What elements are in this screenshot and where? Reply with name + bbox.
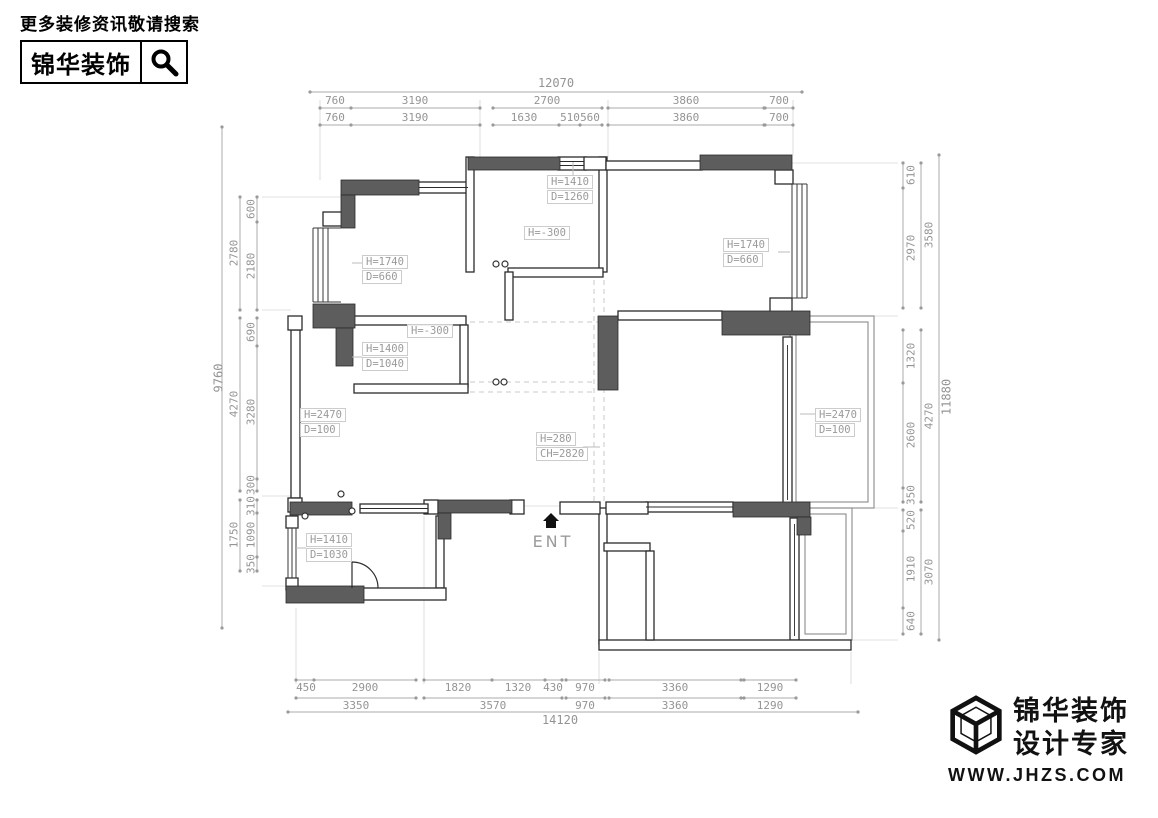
annotation-line: H=1410: [547, 175, 593, 189]
header-logo: 更多装修资讯敬请搜索 锦华装饰: [20, 10, 200, 84]
annotation-line: H=-300: [407, 324, 453, 338]
annotation-line: H=1400: [362, 342, 408, 356]
dim-label: 3190: [402, 112, 429, 123]
dim-label: 2600: [906, 422, 917, 449]
footer-logo: 锦华装饰 设计专家 WWW.JHZS.COM: [948, 694, 1148, 786]
dim-label: 700: [769, 112, 789, 123]
dim-label: 3860: [673, 95, 700, 106]
room-annotation: H=2470 D=100: [815, 408, 861, 438]
annotation-line: H=2470: [300, 408, 346, 422]
dim-label: 3570: [480, 700, 507, 711]
dim-label: 1820: [445, 682, 472, 693]
footer-brand-line1: 锦华装饰: [1013, 695, 1129, 728]
dim-label: 3360: [662, 682, 689, 693]
footer-website: WWW.JHZS.COM: [948, 765, 1148, 786]
dim-label: 610: [906, 165, 917, 185]
annotation-line: H=1410: [306, 533, 352, 547]
dim-label: 310: [246, 496, 257, 516]
dim-label: 970: [575, 700, 595, 711]
dim-label: 450: [296, 682, 316, 693]
balcony-walls: [790, 316, 874, 640]
header-brand: 锦华装饰: [22, 42, 140, 82]
annotation-line: CH=2820: [536, 447, 588, 461]
dim-label: 760: [325, 112, 345, 123]
dim-label: 3190: [402, 95, 429, 106]
dim-label: 12070: [538, 78, 574, 89]
dim-label: 430: [543, 682, 563, 693]
annotation-line: D=1040: [362, 357, 408, 371]
dim-label: 3360: [662, 700, 689, 711]
dim-label: 2970: [906, 235, 917, 262]
cube-wireframe-icon: [948, 694, 1004, 761]
annotation-line: H=2470: [815, 408, 861, 422]
dim-label: 350: [246, 554, 257, 574]
annotation-line: D=1260: [547, 190, 593, 204]
footer-brand-line2: 设计专家: [1013, 728, 1129, 761]
dim-label: 1290: [757, 682, 784, 693]
annotation-line: D=1030: [306, 548, 352, 562]
home-arrow-icon: [543, 513, 559, 528]
annotation-line: D=660: [362, 270, 402, 284]
room-annotation: H=1740 D=660: [723, 238, 769, 268]
dim-label: 520: [906, 510, 917, 530]
header-brand-box: 锦华装饰: [20, 40, 188, 84]
dashed-guides: [470, 280, 604, 505]
dim-label: 2900: [352, 682, 379, 693]
dim-label: 3070: [924, 559, 935, 586]
dim-label: 2180: [246, 253, 257, 280]
dim-label: 3280: [246, 399, 257, 426]
dim-label: 9760: [214, 364, 225, 393]
annotation-line: H=1740: [723, 238, 769, 252]
annotation-line: D=660: [723, 253, 763, 267]
dim-label: 14120: [542, 715, 578, 726]
room-annotation: H=2470 D=100: [300, 408, 346, 438]
dim-label: 600: [246, 199, 257, 219]
door-arc: [352, 562, 378, 588]
dim-label: 1910: [906, 556, 917, 583]
dim-label: 1290: [757, 700, 784, 711]
dim-label: 640: [906, 611, 917, 631]
floorplan-page: 更多装修资讯敬请搜索 锦华装饰 锦华装饰 设计专家 WWW.JHZS.COM E…: [0, 0, 1158, 818]
dim-label: 1750: [229, 522, 240, 549]
dim-label: 560: [580, 112, 600, 123]
dim-label: 4270: [229, 391, 240, 418]
annotation-line: H=1740: [362, 255, 408, 269]
dim-label: 11880: [942, 379, 953, 415]
room-annotation: H=1400 D=1040: [362, 342, 408, 372]
dim-label: 1630: [511, 112, 538, 123]
footer-brand: 锦华装饰 设计专家: [1013, 695, 1129, 761]
room-annotation: H=-300: [524, 226, 570, 241]
dim-label: 2700: [534, 95, 561, 106]
annotation-line: H=-300: [524, 226, 570, 240]
dim-label: 350: [906, 485, 917, 505]
dim-label: 3350: [343, 700, 370, 711]
dim-label: 510: [560, 112, 580, 123]
window-mullions: [360, 162, 795, 637]
search-icon: [140, 42, 186, 82]
dim-label: 690: [246, 322, 257, 342]
dim-label: 1320: [906, 343, 917, 370]
dim-label: 4270: [924, 403, 935, 430]
dim-label: 760: [325, 95, 345, 106]
room-annotation: H=280 CH=2820: [536, 432, 588, 462]
dim-label: 3580: [924, 222, 935, 249]
room-annotation: H=1410 D=1030: [306, 533, 352, 563]
room-annotation: H=1740 D=660: [362, 255, 408, 285]
dim-label: 1320: [505, 682, 532, 693]
room-annotation: H=-300: [407, 324, 453, 339]
dim-label: 1090: [246, 522, 257, 549]
annotation-line: H=280: [536, 432, 576, 446]
room-annotation: H=1410 D=1260: [547, 175, 593, 205]
header-tagline: 更多装修资讯敬请搜索: [20, 10, 200, 35]
dim-label: 970: [575, 682, 595, 693]
dim-label: 700: [769, 95, 789, 106]
entrance-label: ENT: [533, 532, 574, 551]
annotation-line: D=100: [815, 423, 855, 437]
dim-label: 300: [246, 475, 257, 495]
dim-label: 2780: [229, 240, 240, 267]
annotation-line: D=100: [300, 423, 340, 437]
dim-label: 3860: [673, 112, 700, 123]
